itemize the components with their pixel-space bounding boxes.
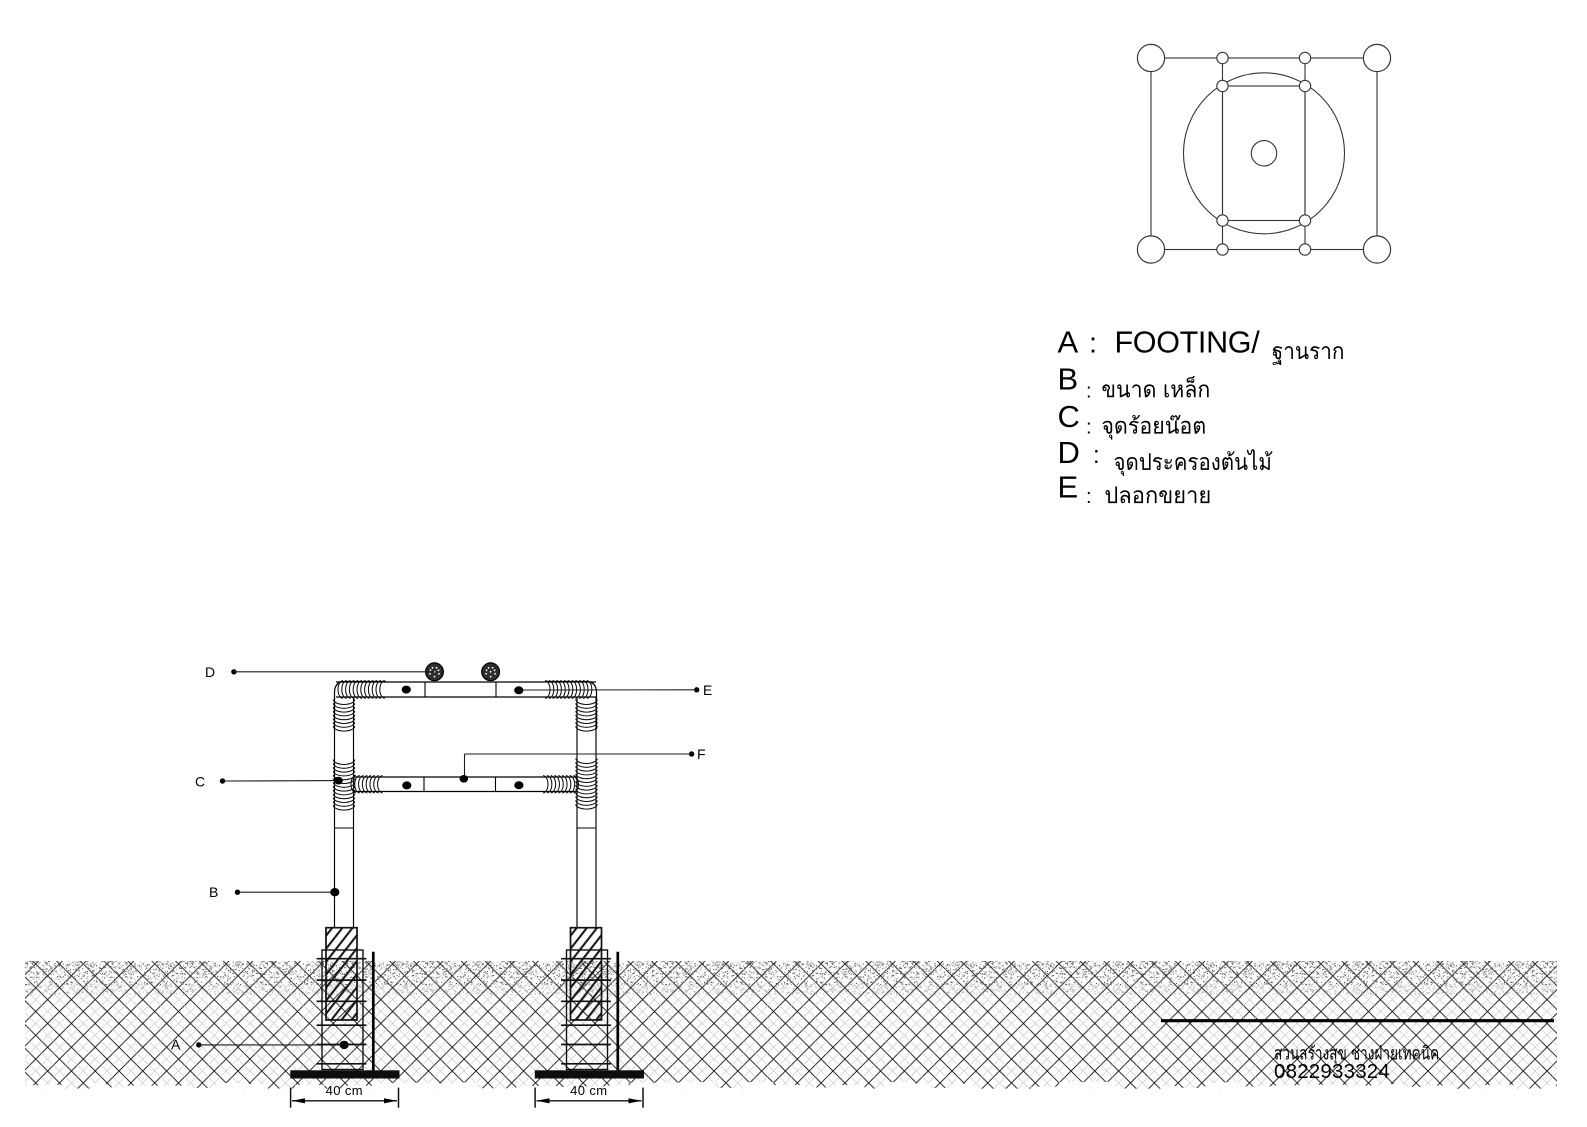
- svg-text:C: C: [195, 774, 205, 790]
- svg-text:A: A: [1058, 325, 1079, 360]
- svg-text::: :: [1089, 328, 1097, 360]
- svg-text:C: C: [1058, 399, 1080, 434]
- svg-text:E: E: [703, 682, 712, 698]
- svg-text:F: F: [697, 746, 706, 762]
- svg-text:0822933324: 0822933324: [1274, 1060, 1390, 1083]
- svg-text:E: E: [1058, 470, 1079, 505]
- svg-text::: :: [1086, 486, 1092, 508]
- svg-text:A: A: [171, 1037, 181, 1053]
- svg-text:B: B: [209, 884, 218, 900]
- svg-text:40 cm: 40 cm: [326, 1083, 363, 1098]
- svg-text:B: B: [1058, 362, 1079, 397]
- svg-text::: :: [1086, 417, 1092, 439]
- svg-text:D: D: [1058, 435, 1080, 470]
- svg-text::: :: [1086, 380, 1092, 402]
- svg-text:D: D: [205, 664, 215, 680]
- svg-text::: :: [1093, 442, 1100, 469]
- svg-text:40 cm: 40 cm: [570, 1083, 607, 1098]
- svg-text:FOOTING/: FOOTING/: [1115, 326, 1261, 360]
